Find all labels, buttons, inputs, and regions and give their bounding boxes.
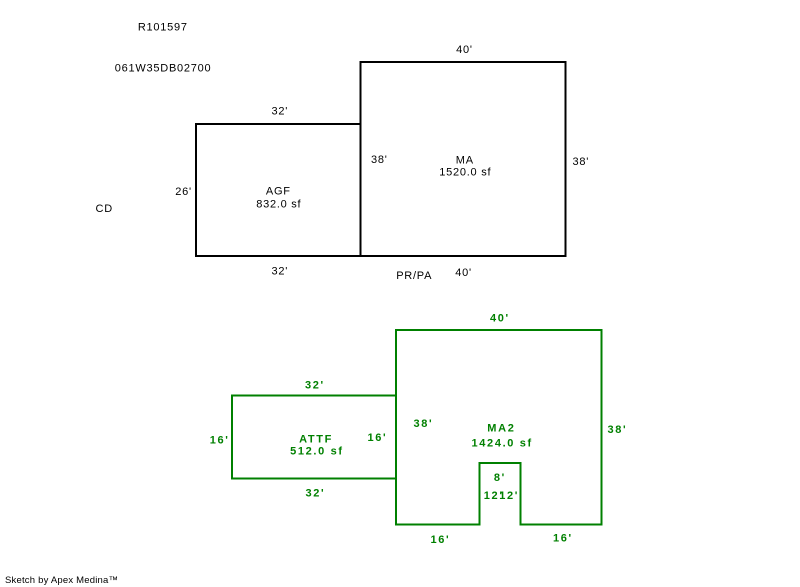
svg-text:40': 40' (455, 267, 472, 279)
svg-text:32': 32' (305, 380, 325, 392)
svg-text:40': 40' (456, 44, 473, 56)
svg-text:AGF: AGF (266, 186, 291, 198)
svg-text:16': 16' (553, 533, 573, 545)
svg-text:26': 26' (175, 186, 192, 198)
svg-text:CD: CD (96, 203, 113, 215)
svg-text:40': 40' (490, 313, 510, 325)
svg-text:1424.0 sf: 1424.0 sf (472, 438, 533, 450)
svg-text:061W35DB02700: 061W35DB02700 (115, 63, 212, 75)
svg-text:8': 8' (494, 472, 506, 484)
svg-text:38': 38' (573, 156, 590, 168)
svg-text:MA2: MA2 (487, 423, 515, 435)
svg-text:512.0 sf: 512.0 sf (290, 446, 344, 458)
svg-text:16': 16' (430, 534, 450, 546)
svg-text:32': 32' (305, 488, 325, 500)
svg-text:16': 16' (210, 434, 230, 446)
svg-text:PR/PA: PR/PA (396, 270, 432, 282)
svg-text:MA: MA (456, 155, 474, 167)
svg-text:32': 32' (272, 266, 289, 278)
svg-text:': ' (499, 490, 502, 502)
svg-text:38': 38' (607, 424, 627, 436)
svg-text:ATTF: ATTF (299, 434, 333, 446)
svg-text:Sketch by Apex Medina™: Sketch by Apex Medina™ (5, 575, 118, 586)
svg-text:R101597: R101597 (138, 22, 188, 34)
svg-text:16': 16' (367, 432, 387, 444)
svg-text:832.0 sf: 832.0 sf (256, 199, 301, 211)
svg-text:38': 38' (371, 154, 388, 166)
svg-text:32': 32' (272, 106, 289, 118)
svg-text:38': 38' (413, 418, 433, 430)
svg-text:1520.0 sf: 1520.0 sf (439, 167, 491, 179)
